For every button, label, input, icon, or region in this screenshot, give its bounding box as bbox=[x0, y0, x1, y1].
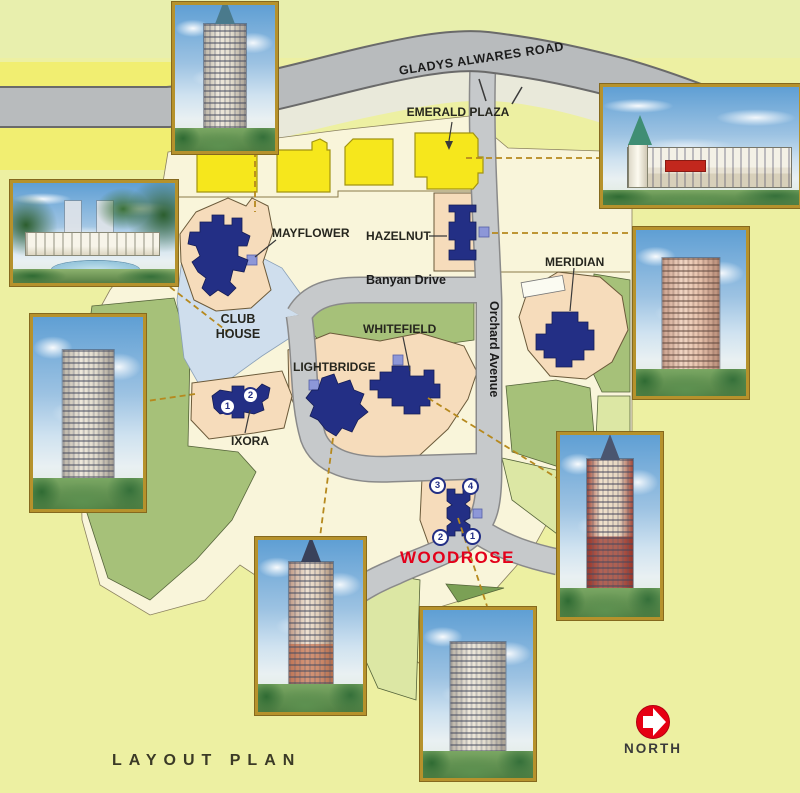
plaza-illustration bbox=[628, 148, 791, 187]
tower-spire bbox=[215, 2, 235, 24]
compass-label: NORTH bbox=[613, 741, 693, 756]
clubhouse-illustration bbox=[26, 233, 159, 255]
layout-plan-page: GLADYS ALWARES ROAD EMERALD PLAZA MAYFLO… bbox=[0, 0, 800, 793]
unit-marker-woodrose-4: 4 bbox=[462, 478, 479, 495]
tower-spire bbox=[600, 434, 620, 460]
plaza-signage bbox=[666, 161, 705, 170]
tower-spire bbox=[301, 537, 321, 562]
plaza-tower bbox=[629, 145, 647, 187]
place-label-hazelnut: HAZELNUT bbox=[366, 229, 431, 243]
place-label-ixora: IXORA bbox=[231, 434, 269, 448]
foliage-illustration bbox=[636, 369, 746, 396]
tower-illustration bbox=[587, 459, 633, 594]
unit-marker-ixora-1: 1 bbox=[219, 398, 236, 415]
place-label-emerald-plaza: EMERALD PLAZA bbox=[398, 105, 518, 119]
unit-marker-woodrose-2: 2 bbox=[432, 529, 449, 546]
place-label-club-house: CLUB HOUSE bbox=[203, 312, 273, 341]
foliage-illustration bbox=[33, 478, 143, 509]
foliage-illustration bbox=[560, 588, 660, 617]
place-label-woodrose: WOODROSE bbox=[400, 548, 515, 568]
clubhouse-pool-rendering-left bbox=[10, 180, 178, 286]
lawn-illustration bbox=[13, 269, 175, 283]
plaza-tower-roof bbox=[628, 115, 652, 145]
highrise-tower-rendering-mid-left bbox=[30, 314, 146, 512]
road-label-orchard-avenue: Orchard Avenue bbox=[487, 301, 501, 397]
tower-illustration bbox=[662, 258, 719, 374]
foliage-illustration bbox=[423, 751, 533, 778]
unit-marker-ixora-2: 2 bbox=[242, 387, 259, 404]
page-title: LAYOUT PLAN bbox=[112, 752, 301, 770]
place-label-whitefield: WHITEFIELD bbox=[363, 322, 436, 336]
club-house-line1: CLUB bbox=[221, 312, 256, 326]
unit-marker-woodrose-1: 1 bbox=[464, 528, 481, 545]
north-arrow-icon bbox=[637, 706, 670, 739]
foliage-illustration bbox=[258, 684, 363, 712]
highrise-tower-rendering-top-left bbox=[172, 2, 278, 154]
unit-marker-woodrose-3: 3 bbox=[429, 477, 446, 494]
tower-illustration bbox=[204, 24, 246, 132]
tower-illustration bbox=[63, 350, 114, 484]
retail-plaza-rendering-top-right bbox=[600, 84, 800, 208]
place-label-mayflower: MAYFLOWER bbox=[272, 226, 350, 240]
highrise-tower-rendering-right bbox=[633, 227, 749, 399]
foliage-illustration bbox=[603, 190, 799, 205]
road-label-banyan-drive: Banyan Drive bbox=[366, 273, 446, 287]
spire-tower-rendering-bottom-right bbox=[557, 432, 663, 620]
place-label-meridian: MERIDIAN bbox=[545, 255, 604, 269]
foliage-illustration bbox=[175, 128, 275, 151]
spire-tower-rendering-bottom-left bbox=[255, 537, 366, 715]
place-label-lightbridge: LIGHTBRIDGE bbox=[293, 360, 376, 374]
tower-illustration bbox=[288, 562, 332, 689]
highrise-tower-rendering-bottom-center bbox=[420, 607, 536, 781]
tower-illustration bbox=[451, 642, 506, 756]
club-house-line2: HOUSE bbox=[216, 327, 260, 341]
